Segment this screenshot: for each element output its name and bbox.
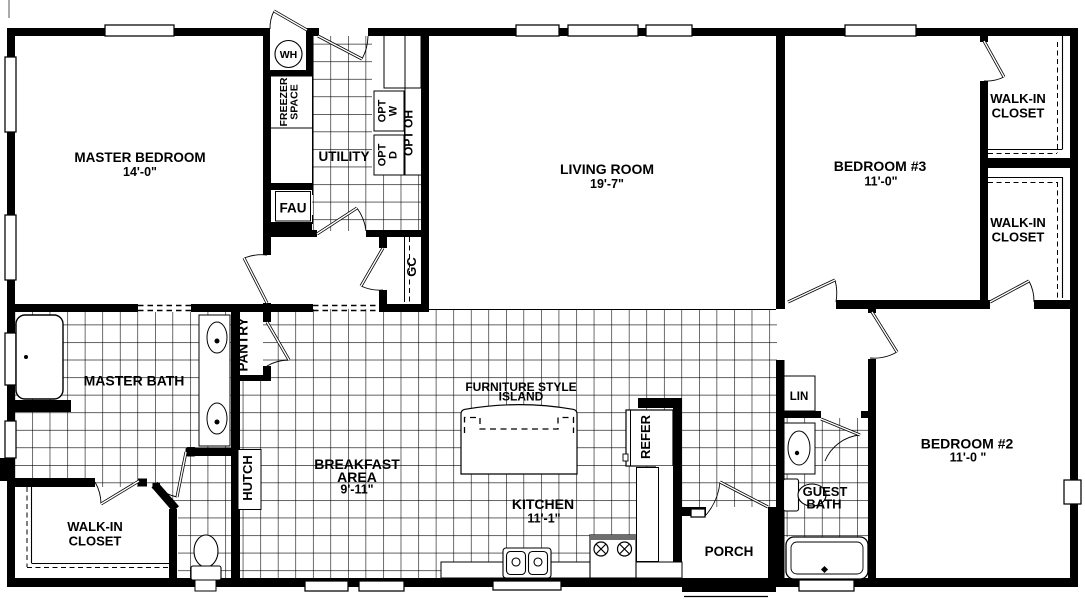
svg-text:11'-0": 11'-0"	[864, 175, 897, 189]
svg-text:D: D	[388, 151, 400, 159]
svg-text:BATH: BATH	[806, 497, 841, 512]
svg-text:PANTRY: PANTRY	[236, 318, 251, 372]
svg-text:9'-11": 9'-11"	[340, 483, 373, 497]
svg-text:BEDROOM #3: BEDROOM #3	[834, 158, 927, 174]
svg-text:WH: WH	[280, 49, 298, 61]
svg-text:W: W	[388, 105, 400, 116]
svg-text:FAU: FAU	[280, 201, 307, 216]
svg-text:SPACE: SPACE	[289, 84, 301, 119]
svg-text:PORCH: PORCH	[705, 544, 754, 559]
svg-text:CLOSET: CLOSET	[69, 534, 122, 549]
svg-text:LIVING ROOM: LIVING ROOM	[560, 161, 654, 177]
svg-text:GC: GC	[404, 257, 419, 277]
svg-text:UTILITY: UTILITY	[319, 149, 370, 164]
svg-text:MASTER BATH: MASTER BATH	[84, 373, 185, 389]
svg-text:WALK-IN: WALK-IN	[67, 519, 123, 534]
svg-text:WALK-IN: WALK-IN	[990, 215, 1046, 230]
svg-text:ISLAND: ISLAND	[499, 390, 544, 404]
svg-text:REFER: REFER	[638, 414, 653, 459]
svg-text:19'-7": 19'-7"	[590, 177, 624, 191]
svg-text:OPT OH: OPT OH	[402, 110, 416, 156]
svg-text:WALK-IN: WALK-IN	[990, 91, 1046, 106]
svg-text:MASTER BEDROOM: MASTER BEDROOM	[74, 150, 205, 165]
svg-text:BEDROOM #2: BEDROOM #2	[921, 436, 1014, 452]
svg-text:KITCHEN: KITCHEN	[512, 496, 574, 512]
svg-text:HUTCH: HUTCH	[240, 455, 255, 501]
svg-text:CLOSET: CLOSET	[992, 230, 1045, 245]
svg-text:LIN: LIN	[790, 391, 809, 403]
svg-text:11'-0 ": 11'-0 "	[950, 451, 987, 465]
svg-text:14'-0": 14'-0"	[123, 165, 157, 179]
svg-text:CLOSET: CLOSET	[992, 106, 1045, 121]
svg-text:11'-1": 11'-1"	[527, 512, 560, 526]
